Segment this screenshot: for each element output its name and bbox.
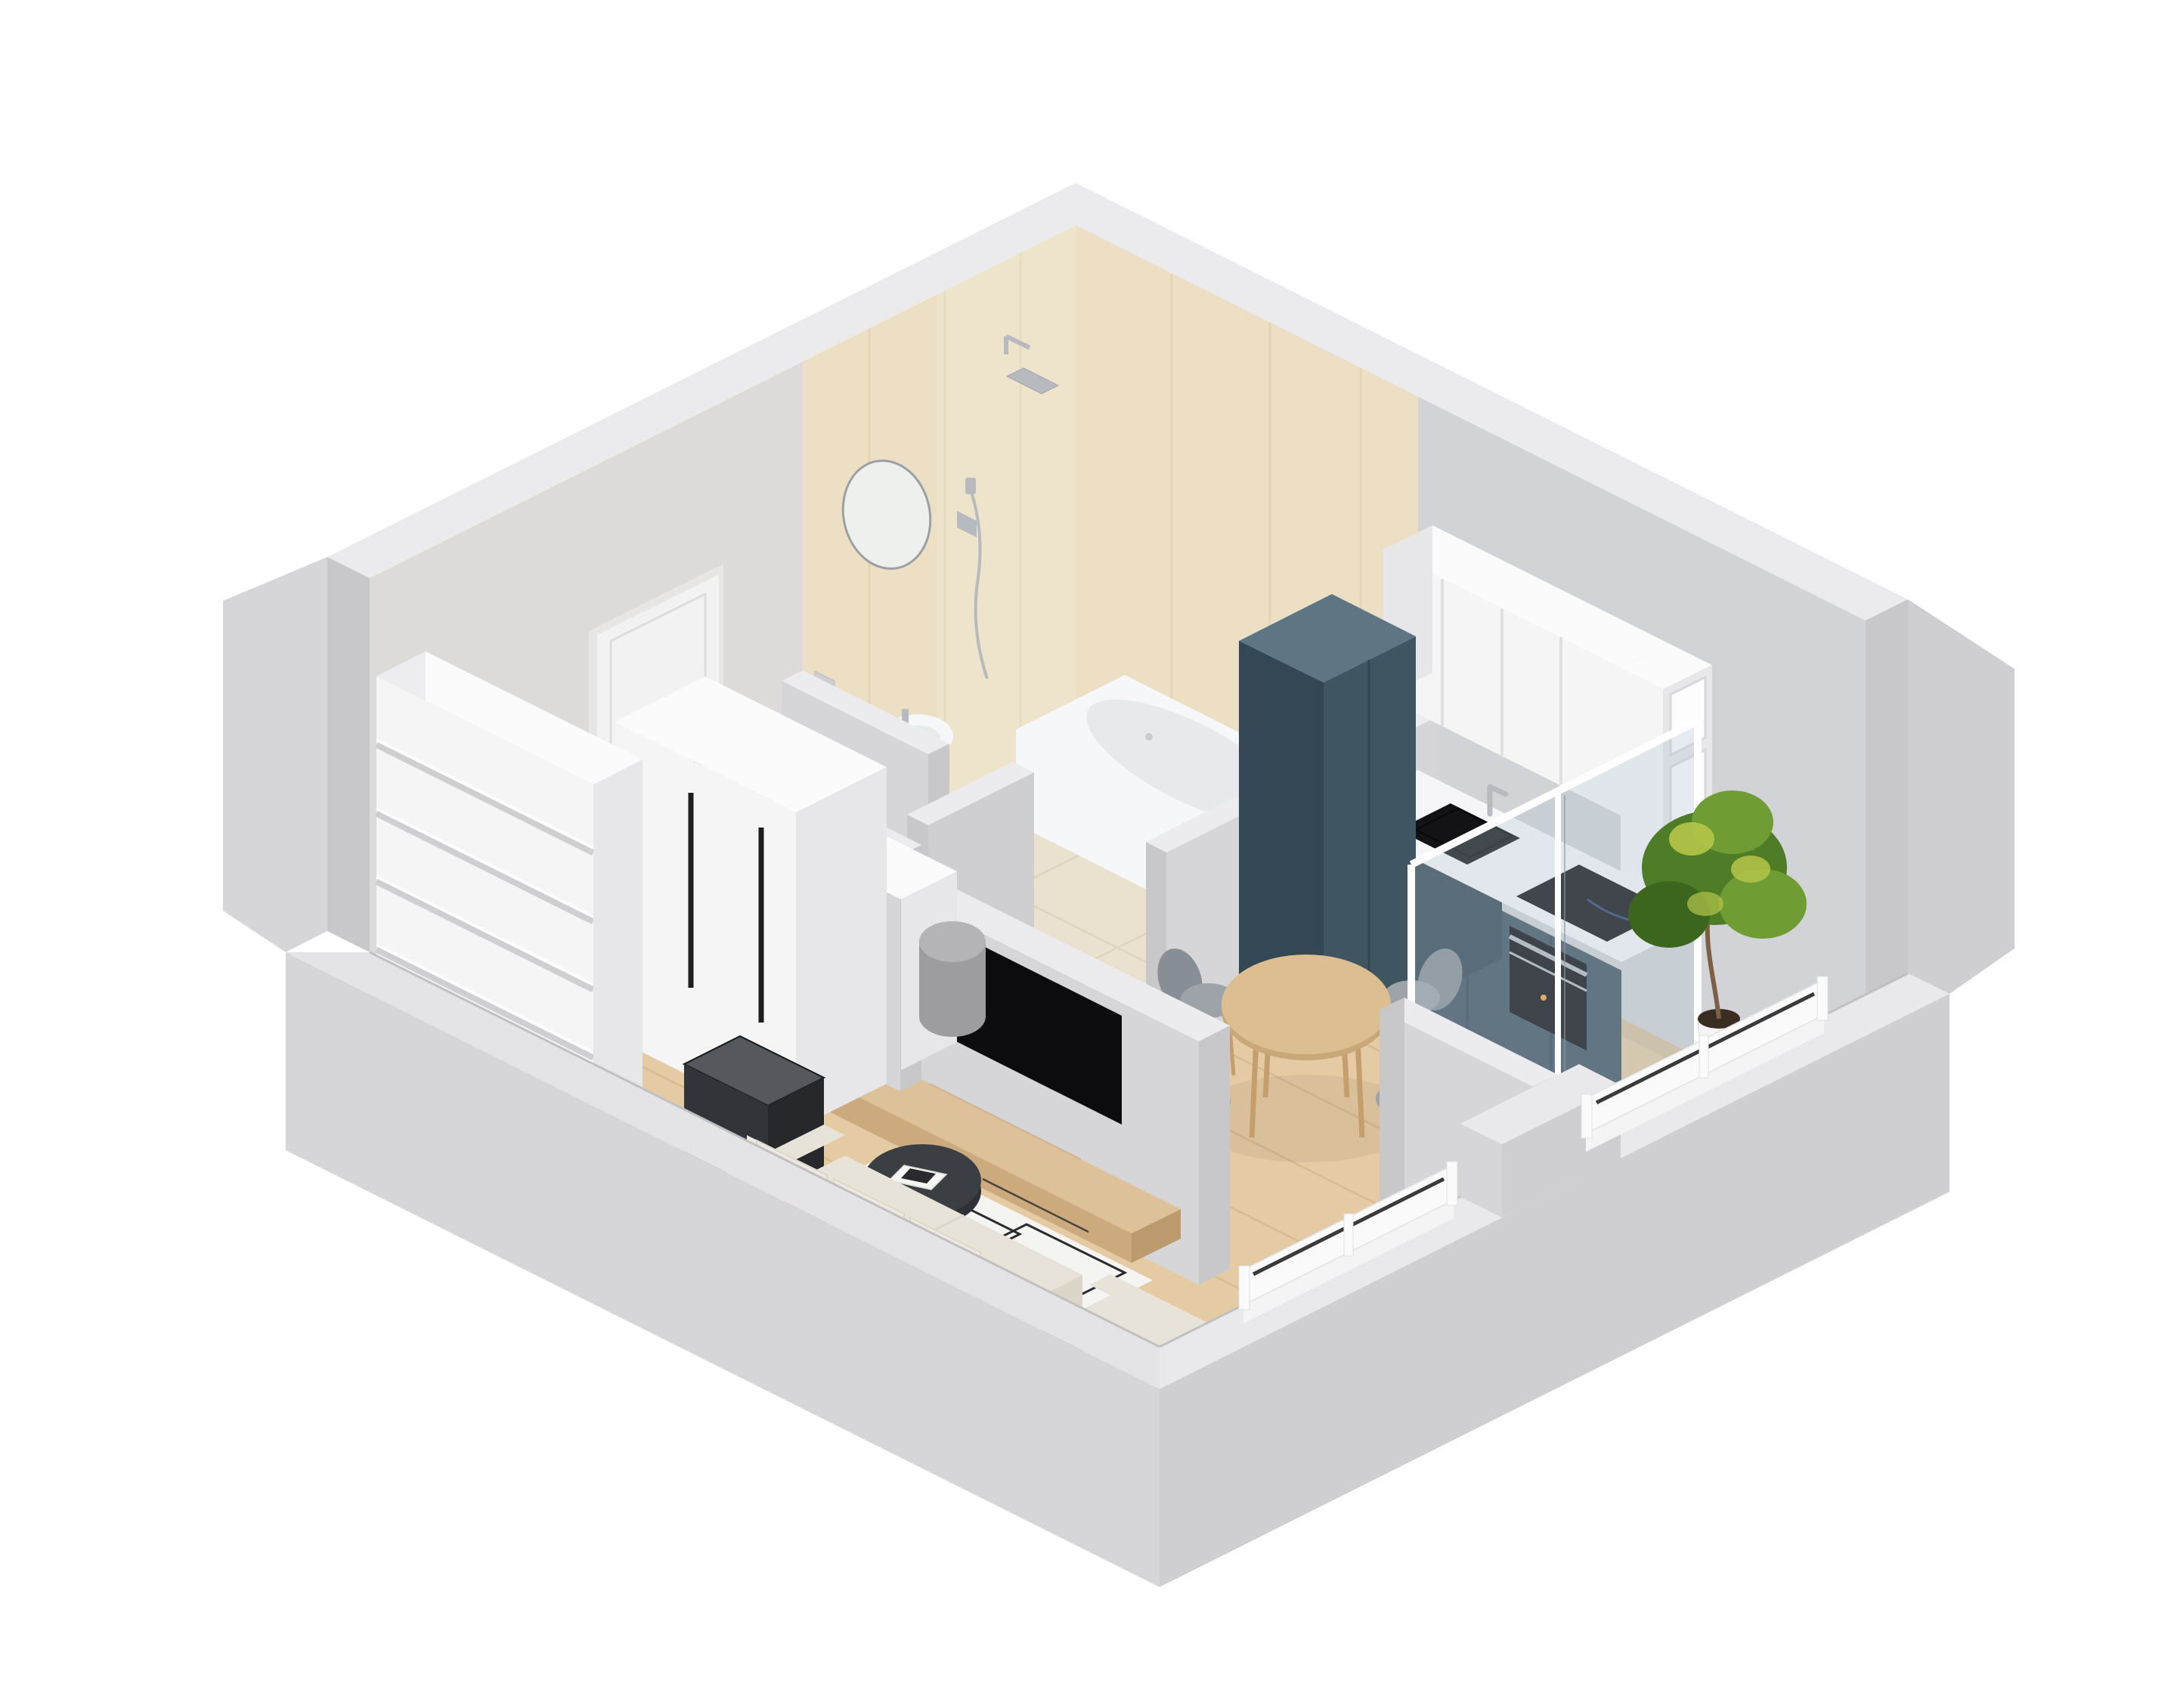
railing-post bbox=[1447, 1162, 1457, 1205]
pouf-top bbox=[919, 921, 986, 962]
tub-drain bbox=[1145, 733, 1153, 741]
floor-plan-render bbox=[0, 0, 2177, 1708]
wall-end-face bbox=[1866, 599, 1908, 995]
exterior-left-face bbox=[223, 557, 327, 952]
gray-pouf bbox=[919, 921, 986, 1037]
railing-post bbox=[1344, 1214, 1353, 1256]
foliage bbox=[1687, 892, 1723, 916]
railing-post bbox=[1239, 1266, 1250, 1310]
railing-post bbox=[1699, 1035, 1708, 1078]
railing-post bbox=[1581, 1094, 1592, 1138]
tv-wall-east-end bbox=[1199, 1026, 1230, 1285]
exterior-right-face bbox=[1908, 599, 2014, 994]
table-top bbox=[1222, 955, 1391, 1054]
isometric-scene bbox=[0, 0, 2177, 1708]
foliage bbox=[1731, 856, 1770, 883]
foliage bbox=[1669, 822, 1714, 856]
railing-post bbox=[1817, 976, 1828, 1020]
wall-end-face bbox=[327, 557, 370, 952]
hand-shower-head bbox=[965, 478, 976, 494]
